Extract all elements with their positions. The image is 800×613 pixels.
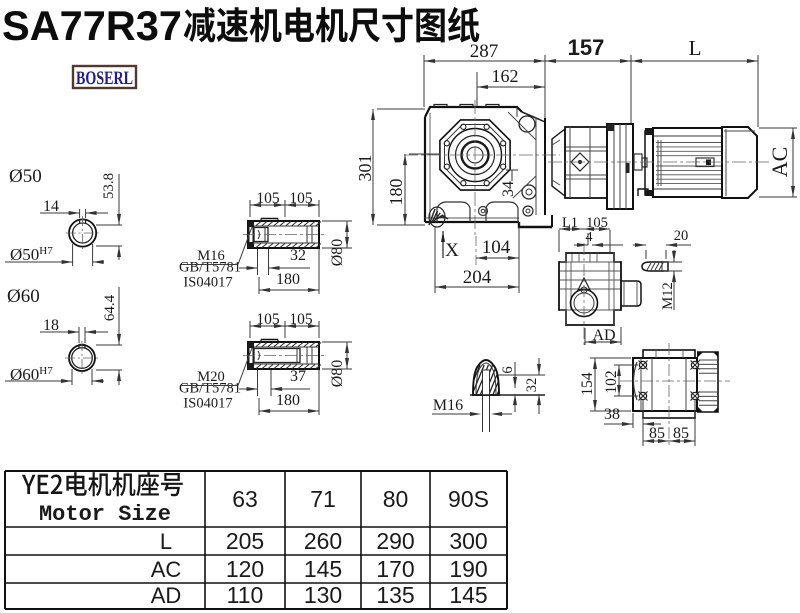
svg-text:AC: AC xyxy=(767,147,792,178)
svg-text:GB/T5781: GB/T5781 xyxy=(179,260,241,276)
svg-text:90S: 90S xyxy=(448,486,489,512)
svg-text:80: 80 xyxy=(383,486,409,512)
svg-text:204: 204 xyxy=(463,267,492,288)
svg-text:6: 6 xyxy=(500,366,516,373)
svg-text:300: 300 xyxy=(449,528,487,554)
svg-text:130: 130 xyxy=(304,582,342,608)
svg-text:38: 38 xyxy=(604,406,620,423)
svg-text:104: 104 xyxy=(482,237,511,258)
svg-text:154: 154 xyxy=(579,372,596,396)
svg-text:157: 157 xyxy=(568,35,605,60)
svg-text:Ø80: Ø80 xyxy=(329,239,346,267)
svg-text:18: 18 xyxy=(43,317,59,334)
svg-text:290: 290 xyxy=(376,528,414,554)
svg-text:53.8: 53.8 xyxy=(101,173,117,199)
svg-text:IS04017: IS04017 xyxy=(183,396,232,412)
svg-text:X: X xyxy=(445,240,459,261)
svg-text:Ø50: Ø50 xyxy=(9,166,42,187)
svg-text:71: 71 xyxy=(310,486,336,512)
svg-text:180: 180 xyxy=(276,392,300,409)
svg-text:135: 135 xyxy=(376,582,414,608)
svg-text:32: 32 xyxy=(290,247,306,264)
svg-text:85: 85 xyxy=(673,425,689,442)
svg-text:145: 145 xyxy=(449,582,487,608)
svg-text:Motor Size: Motor Size xyxy=(39,502,171,527)
svg-text:85: 85 xyxy=(649,425,665,442)
svg-text:AC: AC xyxy=(151,557,182,582)
svg-text:63: 63 xyxy=(232,486,258,512)
svg-text:Ø80: Ø80 xyxy=(329,360,346,388)
svg-text:M12: M12 xyxy=(660,282,676,309)
svg-text:20: 20 xyxy=(674,228,689,244)
svg-text:190: 190 xyxy=(449,556,487,582)
svg-text:14: 14 xyxy=(43,198,59,215)
svg-text:170: 170 xyxy=(376,556,414,582)
svg-text:AD: AD xyxy=(151,583,182,608)
svg-text:64.4: 64.4 xyxy=(102,294,118,321)
svg-text:180: 180 xyxy=(386,179,406,206)
svg-text:287: 287 xyxy=(470,41,499,62)
svg-text:301: 301 xyxy=(355,155,375,182)
svg-text:32: 32 xyxy=(524,378,540,393)
svg-text:260: 260 xyxy=(304,528,342,554)
svg-text:GB/T5781: GB/T5781 xyxy=(179,381,241,397)
svg-text:37: 37 xyxy=(290,368,306,385)
svg-text:Ø60: Ø60 xyxy=(7,286,40,307)
svg-text:M16: M16 xyxy=(433,397,463,414)
svg-text:162: 162 xyxy=(492,66,519,86)
svg-text:180: 180 xyxy=(276,271,300,288)
svg-text:L: L xyxy=(689,36,702,60)
svg-text:120: 120 xyxy=(226,556,264,582)
svg-text:145: 145 xyxy=(304,556,342,582)
svg-text:IS04017: IS04017 xyxy=(183,275,232,291)
svg-text:34: 34 xyxy=(500,181,517,197)
svg-text:110: 110 xyxy=(227,582,264,608)
svg-text:L: L xyxy=(160,529,172,554)
svg-text:4: 4 xyxy=(586,230,593,245)
svg-text:205: 205 xyxy=(226,528,264,554)
